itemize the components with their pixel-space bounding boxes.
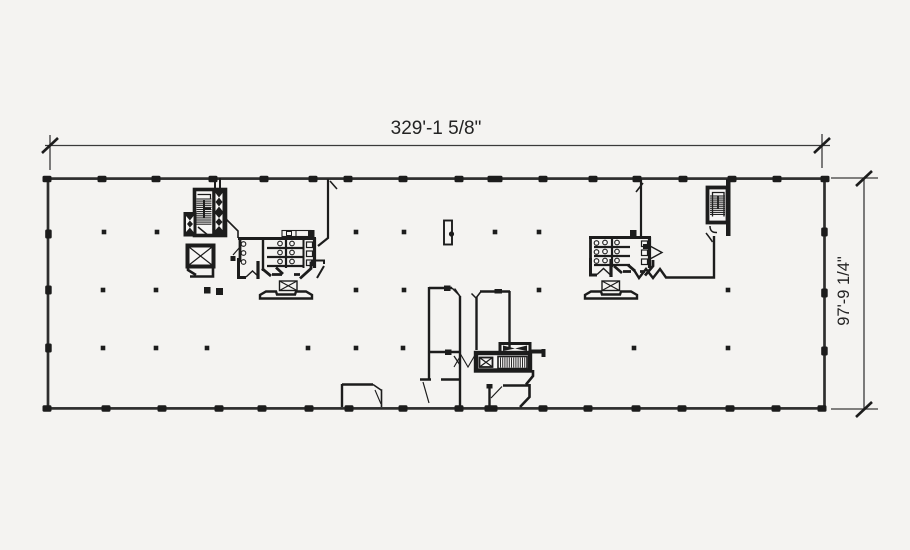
svg-text:329'-1 5/8": 329'-1 5/8": [391, 118, 482, 139]
svg-text:97'-9 1/4": 97'-9 1/4": [835, 256, 853, 326]
